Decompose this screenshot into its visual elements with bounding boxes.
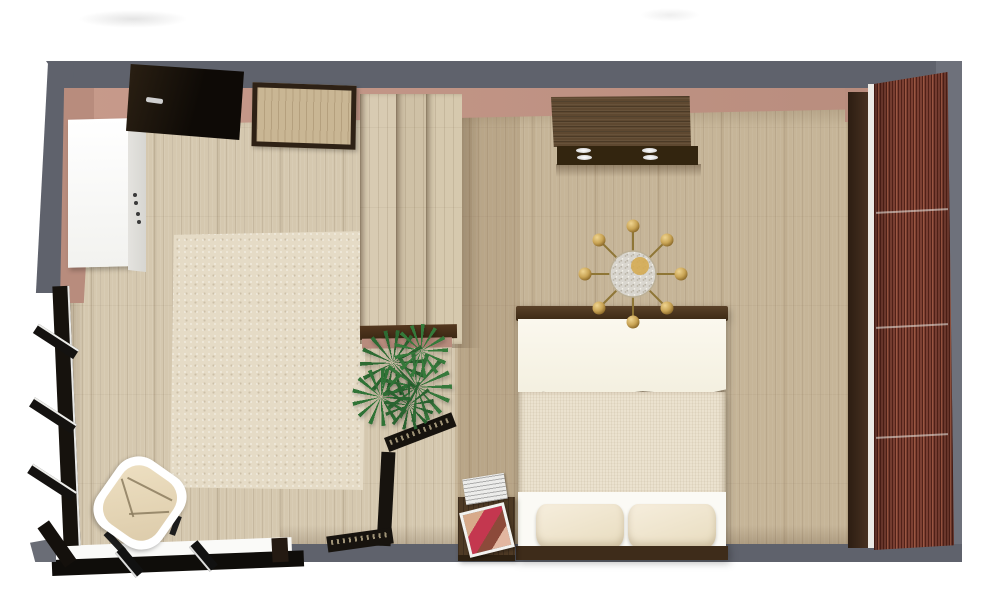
cabinet-handle-icon <box>137 220 141 224</box>
potted-palm[interactable] <box>352 324 456 436</box>
palm-frond <box>384 380 434 430</box>
pillow-left <box>536 504 624 548</box>
margin-smudge <box>640 8 700 22</box>
dresser-knob-icon <box>577 155 592 160</box>
dresser-knob-icon <box>642 148 657 153</box>
floorplan-canvas <box>0 0 1000 593</box>
dresser-knob-icon <box>576 148 591 153</box>
screen-ornament <box>331 532 389 545</box>
area-rug[interactable] <box>170 231 367 490</box>
mahogany-wardrobe[interactable] <box>874 72 954 550</box>
wardrobe-side-panel <box>848 92 870 548</box>
ceiling-chandelier[interactable] <box>576 212 690 338</box>
entry-door[interactable] <box>126 64 244 140</box>
bed-duvet <box>518 392 726 494</box>
palm-frond <box>394 324 448 378</box>
divider-panel <box>360 94 396 344</box>
dresser[interactable] <box>551 96 691 147</box>
dresser-knob-icon <box>643 155 658 160</box>
cabinet-handle-icon <box>136 212 140 216</box>
wall-mirror[interactable] <box>251 82 356 150</box>
margin-smudge <box>78 10 188 28</box>
dresser-shadow <box>556 164 701 177</box>
double-bed[interactable] <box>516 306 728 560</box>
white-cabinet[interactable] <box>68 118 130 268</box>
window-endcap <box>271 538 288 563</box>
bed-headboard <box>516 546 728 560</box>
divider-panel <box>396 94 426 344</box>
chandelier-crystal-disc <box>610 251 656 297</box>
cabinet-handle-icon <box>134 201 138 205</box>
pillow-right <box>628 504 716 548</box>
room-divider[interactable] <box>360 94 462 344</box>
chandelier-gold-center <box>631 257 649 275</box>
divider-panel <box>426 94 462 344</box>
cabinet-handle-icon <box>133 193 137 197</box>
